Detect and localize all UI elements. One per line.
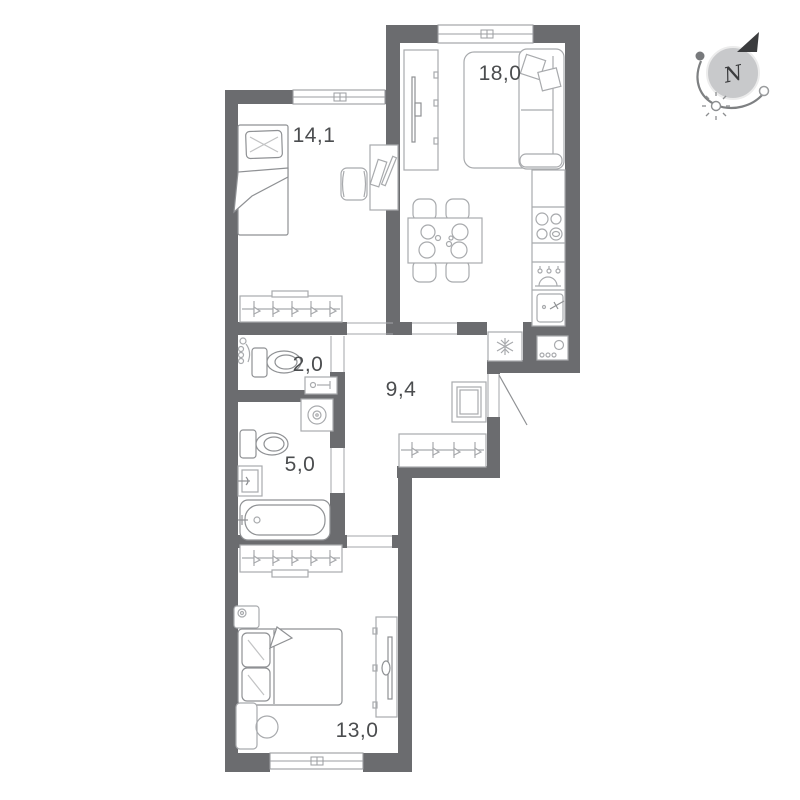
floor-plan: 18,0 14,1 2,0 9,4 5,0 13,0 N bbox=[0, 0, 800, 800]
door-kitchen bbox=[412, 323, 457, 334]
fridge bbox=[488, 332, 522, 361]
bathroom-sink bbox=[238, 466, 262, 496]
wardrobe-with-hooks bbox=[240, 545, 342, 577]
door-bathroom bbox=[331, 448, 344, 493]
kitchen-counter bbox=[532, 170, 565, 326]
label-bedroom: 14,1 bbox=[293, 124, 336, 147]
wardrobe-with-hooks bbox=[399, 434, 486, 467]
hand-sink bbox=[305, 377, 337, 394]
label-wc: 2,0 bbox=[293, 353, 324, 376]
toilet bbox=[240, 430, 288, 458]
furniture-living-kitchen bbox=[404, 49, 568, 361]
window-bedroom-2 bbox=[270, 753, 363, 769]
window-bedroom bbox=[293, 90, 385, 104]
mirror-cabinet bbox=[452, 382, 486, 422]
console bbox=[236, 703, 257, 749]
label-hallway: 9,4 bbox=[386, 378, 417, 401]
floor-plan-svg: 18,0 14,1 2,0 9,4 5,0 13,0 N bbox=[0, 0, 800, 800]
window-kitchen bbox=[438, 25, 533, 43]
compass-dot-start bbox=[696, 52, 705, 61]
kitchen-sink bbox=[537, 294, 564, 322]
double-bed bbox=[238, 627, 342, 705]
door-bedroom-2 bbox=[347, 536, 392, 547]
label-living-kitchen: 18,0 bbox=[479, 62, 522, 85]
drum-washer bbox=[301, 399, 333, 431]
sun-icon bbox=[702, 92, 730, 120]
sofa bbox=[519, 49, 564, 169]
compass-dot-end bbox=[760, 87, 769, 96]
bathtub bbox=[238, 500, 330, 540]
door-wc bbox=[331, 336, 344, 372]
washing-machine bbox=[537, 336, 568, 360]
wardrobe-with-hooks bbox=[240, 291, 342, 322]
towel-rail bbox=[239, 338, 250, 364]
label-bathroom: 5,0 bbox=[285, 453, 316, 476]
entrance-door-swing bbox=[499, 375, 527, 425]
dining-table bbox=[408, 218, 482, 263]
compass: N bbox=[696, 32, 769, 120]
desk-chair bbox=[341, 168, 367, 200]
nightstand-lamp bbox=[234, 606, 259, 628]
stool bbox=[256, 716, 278, 738]
furniture-bedroom bbox=[234, 125, 398, 322]
label-bedroom-2: 13,0 bbox=[336, 719, 379, 742]
